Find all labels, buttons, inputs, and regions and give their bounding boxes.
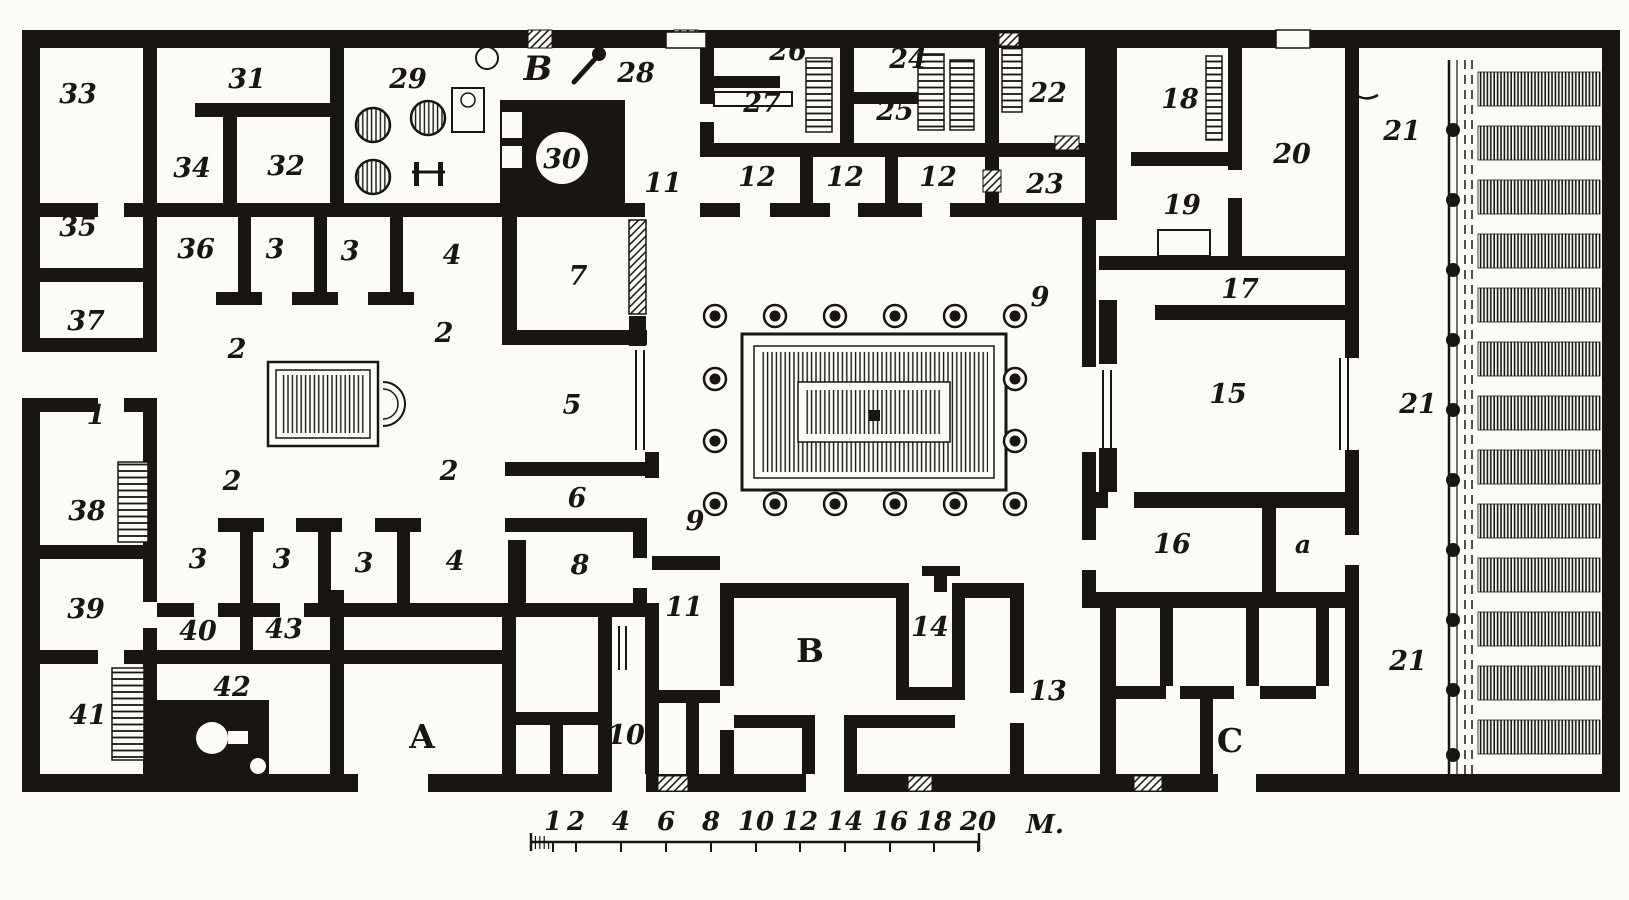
room-label-26: 26: [768, 36, 807, 67]
room-label-21: 21: [1382, 116, 1421, 147]
room-label-5: 5: [563, 390, 582, 421]
scale-tick-label-4: 4: [612, 807, 630, 837]
peristyle-basin: [742, 334, 1006, 490]
scale-tick-label-1: 1: [544, 807, 562, 837]
room-label-30: 30: [543, 144, 581, 175]
room-label-29: 29: [388, 64, 427, 95]
scale-tick-label-2: 2: [566, 807, 585, 837]
room-label-a: a: [1295, 530, 1311, 559]
room-label-3: 3: [341, 236, 360, 267]
room-label-34: 34: [173, 153, 211, 184]
room-label-3: 3: [189, 544, 208, 575]
room-label-23: 23: [1025, 169, 1064, 200]
room-label-38: 38: [68, 496, 106, 527]
room-label-16: 16: [1153, 529, 1191, 560]
scale-unit-label: M.: [1025, 810, 1064, 840]
room-label-22: 22: [1028, 78, 1067, 109]
room-label-35: 35: [59, 212, 97, 243]
room-label-37: 37: [67, 306, 105, 337]
room-label-9: 9: [1031, 282, 1050, 313]
work-table-icon: [452, 88, 484, 132]
room-label-9: 9: [686, 506, 705, 537]
room-label-33: 33: [59, 79, 97, 110]
room-label-41: 41: [69, 700, 107, 731]
room-label-19: 19: [1163, 190, 1201, 221]
room-label-14: 14: [911, 612, 949, 643]
room-label-21: 21: [1388, 646, 1427, 677]
room-label-4: 4: [446, 546, 465, 577]
room-label-12: 12: [738, 162, 776, 193]
room-label-42: 42: [213, 672, 251, 703]
room-label-21: 21: [1398, 389, 1437, 420]
room-label-4: 4: [443, 240, 462, 271]
room-label-40: 40: [179, 616, 217, 647]
scale-tick-label-14: 14: [827, 807, 863, 837]
room-label-2: 2: [227, 334, 247, 365]
room-label-3: 3: [266, 234, 285, 265]
room-label-17: 17: [1221, 274, 1259, 305]
room-label-11: 11: [665, 592, 703, 623]
room-label-3: 3: [355, 548, 374, 579]
room-label-11: 11: [644, 168, 682, 199]
oven-icon: [196, 722, 228, 754]
room-label-25: 25: [875, 96, 914, 127]
label-entrance-B: B: [796, 631, 824, 670]
room-label-6: 6: [568, 483, 587, 514]
room-label-12: 12: [826, 162, 864, 193]
room-label-12: 12: [919, 162, 957, 193]
room-label-10: 10: [607, 720, 645, 751]
room-label-8: 8: [570, 550, 590, 581]
room-label-2: 2: [434, 318, 454, 349]
label-B-script: B: [523, 49, 553, 89]
room-label-2: 2: [439, 456, 459, 487]
scale-tick-label-10: 10: [738, 807, 774, 837]
room-label-1: 1: [87, 400, 106, 431]
scale-tick-label-16: 16: [872, 807, 908, 837]
room-label-39: 39: [67, 594, 105, 625]
room-label-31: 31: [228, 64, 266, 95]
mill-icon: [356, 108, 390, 142]
room-label-7: 7: [569, 261, 588, 292]
scale-tick-label-12: 12: [782, 807, 818, 837]
scale-tick-label-6: 6: [657, 807, 675, 837]
room-label-3: 3: [273, 544, 292, 575]
mill-icon: [356, 160, 390, 194]
scale-tick-label-8: 8: [701, 807, 720, 837]
mill-icon: [411, 101, 445, 135]
room-label-18: 18: [1161, 84, 1199, 115]
room-label-32: 32: [267, 151, 305, 182]
floor-plan: 12468101214161820 M. 333129B282627242522…: [0, 0, 1629, 900]
engraving-sheet: 12468101214161820 M. 333129B282627242522…: [0, 0, 1629, 900]
room-label-13: 13: [1029, 676, 1067, 707]
room-label-15: 15: [1209, 379, 1247, 410]
room-label-24: 24: [888, 44, 927, 75]
room-label-43: 43: [265, 614, 303, 645]
room-label-36: 36: [177, 234, 215, 265]
room-label-27: 27: [742, 88, 781, 119]
scale-tick-label-20: 20: [959, 807, 996, 837]
room-label-28: 28: [616, 58, 655, 89]
room-label-2: 2: [222, 466, 242, 497]
label-entrance-C: C: [1217, 721, 1243, 760]
kneading-basin-icon: [476, 47, 498, 69]
scale-tick-label-18: 18: [916, 807, 952, 837]
room-label-20: 20: [1272, 139, 1311, 170]
label-entrance-A: A: [408, 717, 435, 756]
